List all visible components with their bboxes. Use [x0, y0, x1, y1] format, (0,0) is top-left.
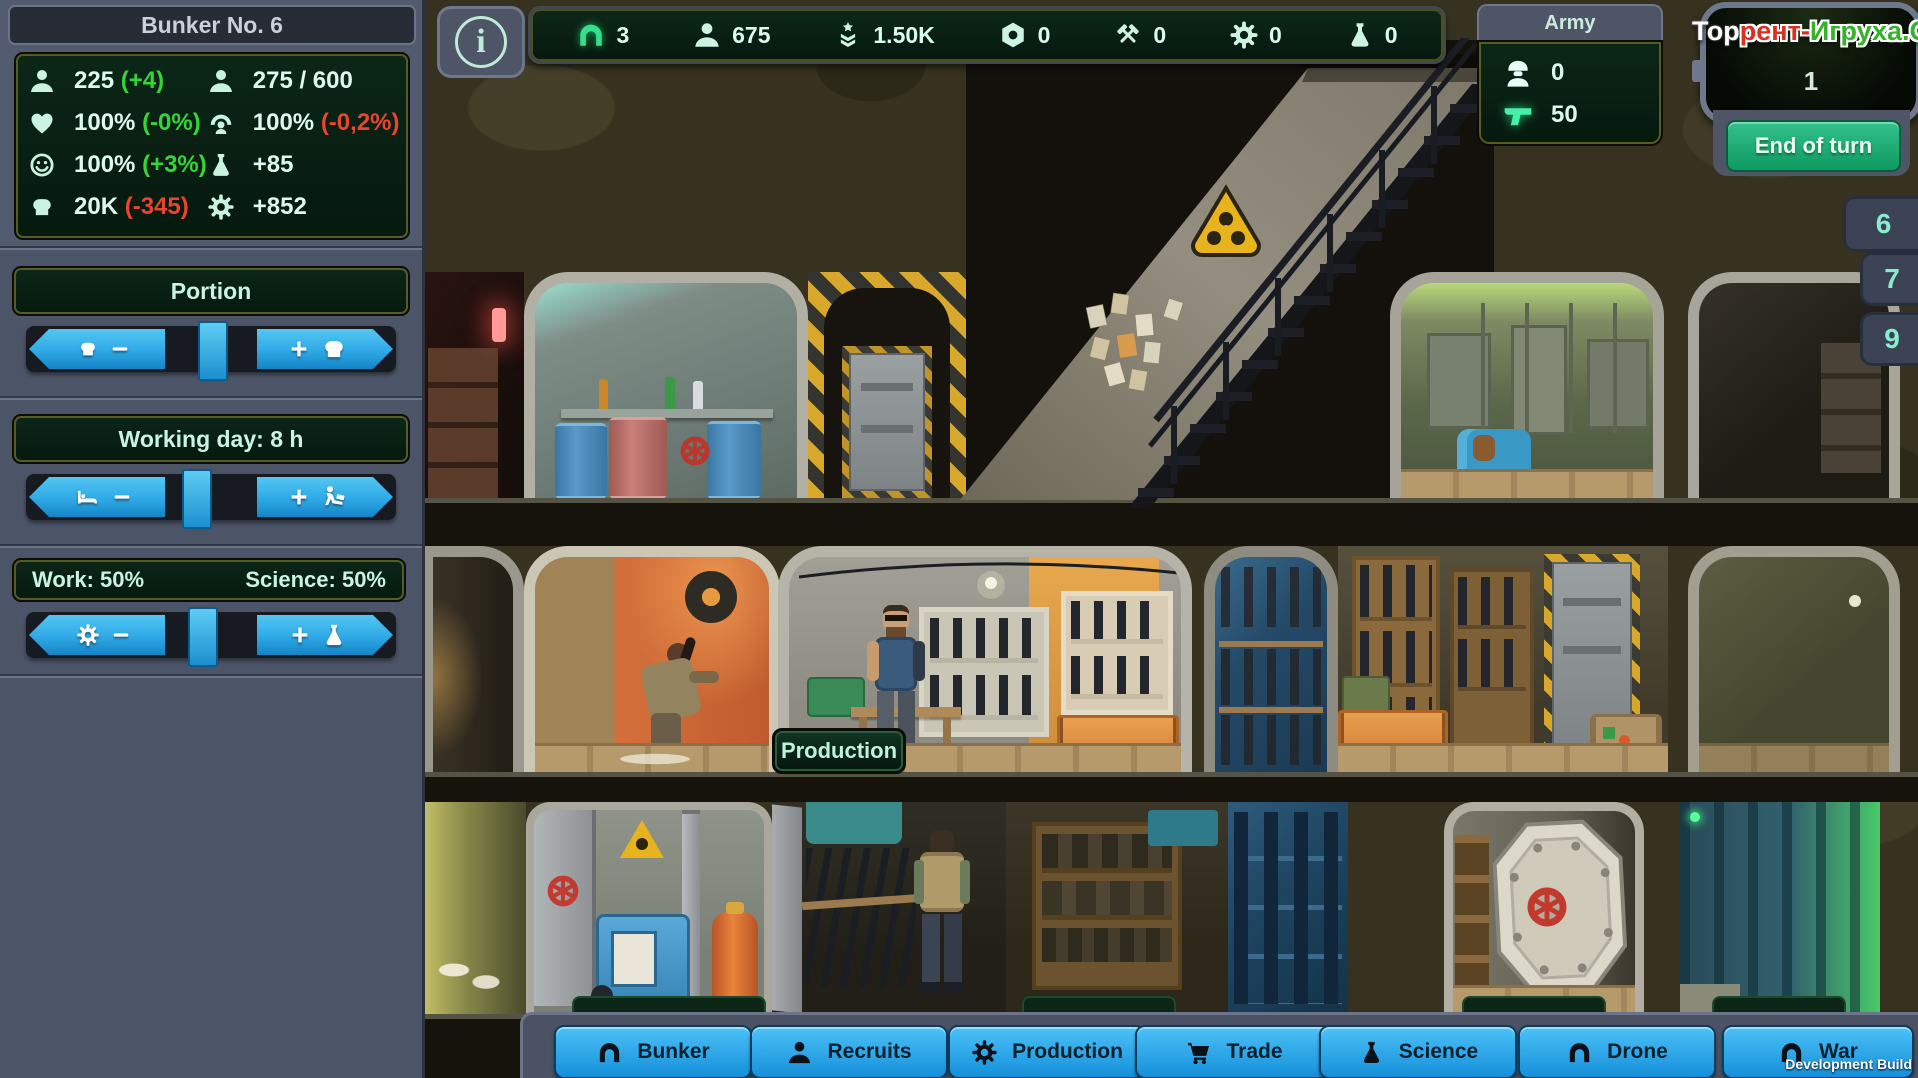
floor-tab-9[interactable]: 9 — [1860, 312, 1918, 366]
bread-icon — [28, 193, 56, 221]
info-button[interactable]: i — [437, 6, 525, 78]
science-label: Science: 50% — [245, 567, 386, 593]
room-orange-quarters[interactable] — [524, 546, 780, 772]
bar-counter — [561, 409, 773, 418]
nav-recruits-button[interactable]: Recruits — [750, 1025, 948, 1078]
army-panel: Army 0 50 — [1477, 4, 1663, 146]
room-lockers-green[interactable] — [1680, 802, 1880, 1014]
end-of-turn-button[interactable]: End of turn — [1726, 120, 1901, 172]
gun-rack-shelf — [919, 607, 1049, 737]
nav-drone-button[interactable]: Drone — [1518, 1025, 1716, 1078]
room-vault[interactable] — [1444, 802, 1644, 1014]
green-led — [1690, 812, 1700, 822]
rack-guns — [1221, 649, 1321, 705]
red-lamp — [492, 308, 506, 342]
flask-icon — [1345, 20, 1375, 50]
rack-shelf — [1219, 641, 1323, 647]
bottle-green — [665, 377, 675, 409]
radiation-sign-small — [620, 820, 664, 858]
person-icon — [692, 20, 722, 50]
work-science-header: Work: 50% Science: 50% — [12, 558, 406, 602]
working-day-slider[interactable] — [26, 474, 396, 520]
portion-slider-thumb[interactable] — [198, 321, 228, 381]
resource-gears: 0 — [1229, 20, 1282, 50]
bunker-stats-panel: 225 (+4) 275 / 600 100% (-0%) 100% (-0,2… — [14, 52, 410, 240]
leaning-rifles — [806, 848, 916, 988]
working-day-decrease-button[interactable] — [29, 477, 165, 517]
rack-shelf — [1219, 707, 1323, 713]
working-day-slider-thumb[interactable] — [182, 469, 212, 529]
teal-box — [1148, 810, 1218, 846]
room-gunwalk[interactable] — [772, 802, 1006, 1014]
minus-icon — [111, 486, 133, 508]
game-screen: Production Bunker No. 6 225 (+4) 275 / 6… — [0, 0, 1918, 1078]
work-science-slider[interactable] — [26, 612, 396, 658]
dome-icon — [596, 1039, 623, 1066]
nav-production-button[interactable]: Production — [948, 1025, 1146, 1078]
bread-small-icon — [77, 338, 99, 360]
hammers-icon — [1113, 20, 1143, 50]
hanging-guns — [1221, 567, 1321, 627]
resource-tools: 0 — [1113, 20, 1166, 50]
resource-parts: 0 — [998, 20, 1051, 50]
room-corridor[interactable] — [808, 272, 966, 498]
science-increase-button[interactable] — [257, 615, 393, 655]
rack-guns — [1221, 715, 1321, 765]
army-soldiers-row: 0 — [1501, 52, 1661, 94]
bunker-title: Bunker No. 6 — [141, 12, 283, 39]
valve-wheel-icon — [544, 872, 582, 910]
minus-icon — [110, 624, 132, 646]
person-icon — [28, 67, 56, 95]
gear-icon — [76, 623, 100, 647]
room-blue-shelves[interactable] — [1228, 802, 1348, 1014]
room-storage-racks[interactable] — [1338, 546, 1668, 772]
room-bottom-left[interactable] — [422, 802, 526, 1014]
room-generator[interactable] — [526, 802, 772, 1014]
room-dark-racks[interactable] — [1006, 802, 1228, 1014]
room-label-production: Production — [772, 728, 906, 774]
shelf-crates — [428, 348, 498, 498]
watermark: Торрент-Игруха.Орг — [1692, 16, 1918, 47]
work-label: Work: 50% — [32, 567, 144, 593]
map-section: To the map — [0, 676, 422, 1078]
work-increase-button[interactable] — [29, 615, 165, 655]
development-build-label: Development Build — [1785, 1056, 1912, 1072]
rank-icon — [833, 20, 863, 50]
sidebar: Bunker No. 6 225 (+4) 275 / 600 100% (-0… — [0, 0, 425, 1078]
corridor-door — [842, 346, 932, 498]
army-title: Army — [1477, 4, 1663, 40]
flask-icon — [321, 622, 347, 648]
cart-icon — [1185, 1039, 1212, 1066]
bread-big-icon — [320, 335, 348, 363]
nav-science-button[interactable]: Science — [1319, 1025, 1517, 1078]
bulkhead-door — [534, 810, 596, 1006]
bottle-amber — [599, 379, 608, 409]
plus-icon — [288, 486, 310, 508]
resource-population: 675 — [692, 20, 770, 50]
turn-number: 1 — [1706, 66, 1916, 97]
nav-trade-button[interactable]: Trade — [1135, 1025, 1333, 1078]
person-icon — [207, 67, 235, 95]
pistol-icon — [1501, 98, 1535, 132]
flask-icon — [207, 151, 235, 179]
room-mid-right[interactable] — [1688, 546, 1900, 772]
shelving-unit — [1032, 822, 1182, 990]
nav-bunker-button[interactable]: Bunker — [554, 1025, 752, 1078]
generator-machine — [596, 914, 690, 1004]
bed-icon — [75, 484, 101, 510]
room-armory-blue[interactable] — [1204, 546, 1338, 772]
portion-section: Portion — [0, 248, 422, 396]
bunker-title-bar: Bunker No. 6 — [8, 5, 416, 45]
teal-cabinet — [806, 802, 902, 844]
floor-tab-6[interactable]: 6 — [1843, 196, 1918, 252]
gear-icon — [207, 193, 235, 221]
resource-bar: 3 675 1.50K 0 0 0 0 — [528, 6, 1446, 64]
panel-hook — [1692, 60, 1702, 82]
vault-door — [1483, 817, 1633, 1005]
character-woman[interactable] — [631, 643, 711, 759]
working-day-section: Working day: 8 h — [0, 398, 422, 544]
staircase — [960, 38, 1500, 546]
floor-papers — [430, 954, 510, 994]
gun-rack-shelf — [1061, 591, 1173, 715]
gear-icon — [971, 1039, 998, 1066]
working-day-header: Working day: 8 h — [12, 414, 410, 464]
room-bar[interactable] — [524, 272, 808, 498]
dome-icon — [1566, 1039, 1593, 1066]
wall-lamp — [1849, 595, 1861, 607]
barrel-red — [609, 417, 667, 498]
smiley-icon — [28, 151, 56, 179]
reader-icon — [320, 483, 348, 511]
work-science-section: Work: 50% Science: 50% — [0, 546, 422, 674]
person-icon — [786, 1039, 813, 1066]
resource-bunkers: 3 — [576, 20, 629, 50]
resource-science: 0 — [1345, 20, 1398, 50]
barrel-blue-1 — [555, 423, 607, 498]
wall-fan — [685, 571, 737, 623]
warm-light — [433, 597, 483, 757]
bunker-scene: Production — [422, 0, 1918, 1078]
gas-cylinder — [712, 912, 758, 998]
portion-increase-button[interactable] — [257, 329, 393, 369]
soldier-icon — [1501, 56, 1535, 90]
portion-decrease-button[interactable] — [29, 329, 165, 369]
nut-icon — [998, 20, 1028, 50]
plus-icon — [288, 338, 310, 360]
plus-icon — [289, 624, 311, 646]
wooden-gun-rack — [1450, 568, 1534, 756]
valve-wheel-icon — [677, 433, 713, 469]
gear-icon — [1229, 20, 1259, 50]
minus-icon — [109, 338, 131, 360]
floor-tab-7[interactable]: 7 — [1860, 252, 1918, 306]
room-mid-left[interactable] — [422, 546, 524, 772]
room-red-storage[interactable] — [422, 272, 524, 498]
bottom-nav-bar: Bunker Recruits Production Trade Science… — [520, 1012, 1918, 1078]
work-science-slider-thumb[interactable] — [188, 607, 218, 667]
flask-icon — [1358, 1039, 1385, 1066]
portion-slider[interactable] — [26, 326, 396, 372]
room-top-right[interactable] — [1688, 272, 1900, 498]
floor-papers — [595, 750, 715, 768]
resource-rank: 1.50K — [833, 20, 934, 50]
portion-header: Portion — [12, 266, 410, 316]
army-weapons-row: 50 — [1501, 94, 1661, 136]
working-day-increase-button[interactable] — [257, 477, 393, 517]
barrel-blue-2 — [707, 421, 761, 498]
dome-icon — [576, 20, 606, 50]
heart-icon — [28, 109, 56, 137]
helmet-icon — [207, 109, 235, 137]
bottle-white — [693, 381, 703, 409]
info-icon: i — [455, 16, 507, 68]
